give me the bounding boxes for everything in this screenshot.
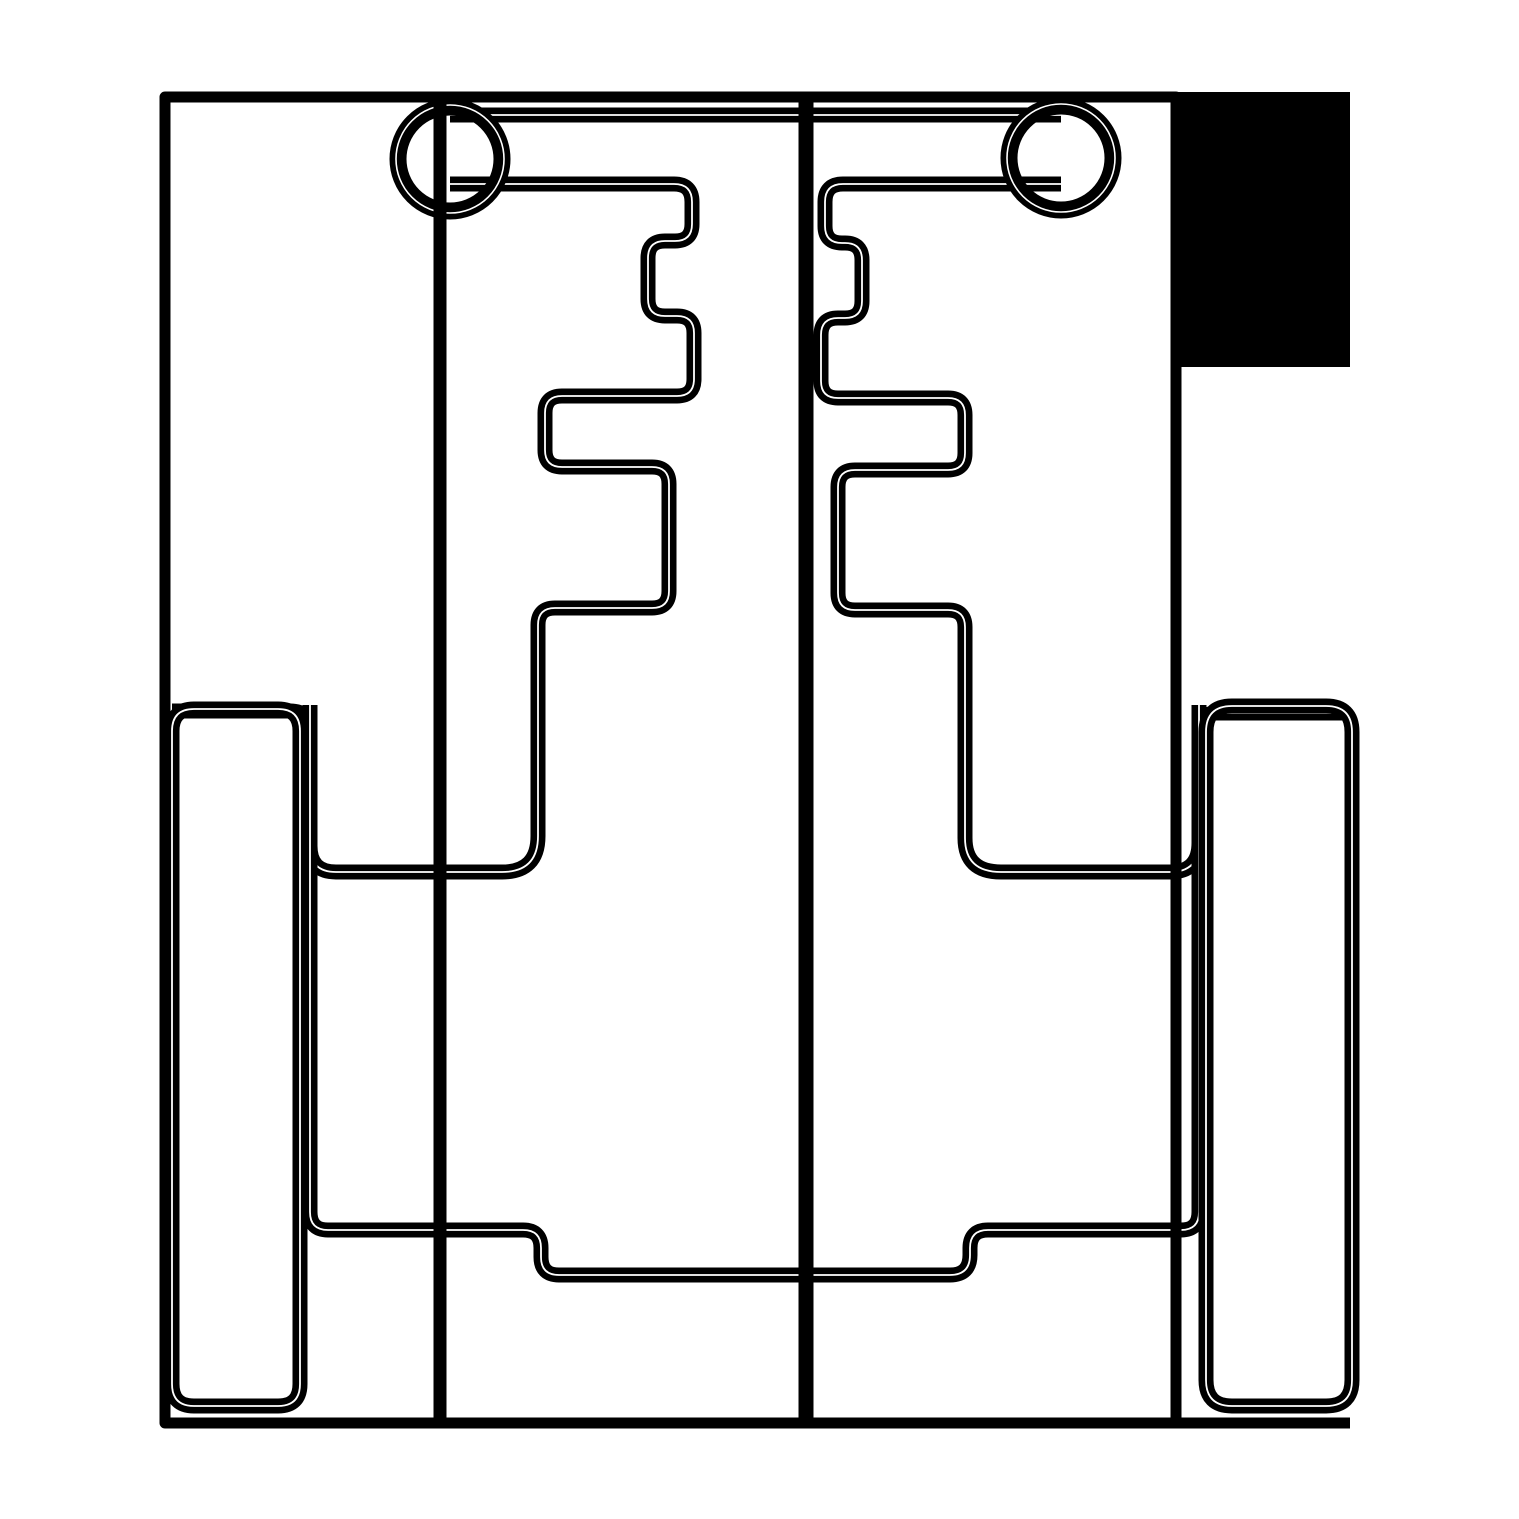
pattern-drawing-page [0,0,1519,1519]
left-side-rail [172,709,300,1406]
corner-fill-block [1172,92,1350,367]
right-side-rail [1206,706,1352,1406]
line-drawing-canvas [0,0,1519,1519]
left-stepped-channel [172,184,694,872]
